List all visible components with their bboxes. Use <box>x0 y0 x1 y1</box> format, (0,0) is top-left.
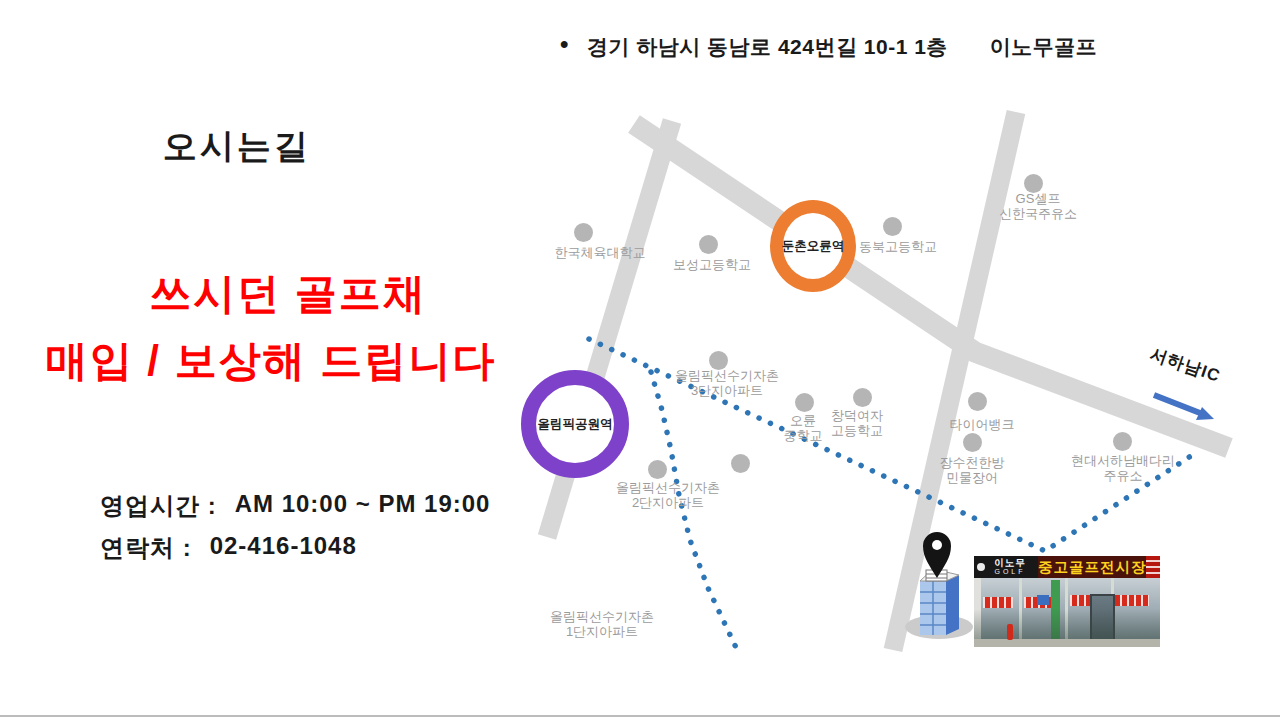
promo-line-1: 쓰시던 골프채 <box>149 266 427 322</box>
poi-label: 동북고등학교 <box>859 240 937 255</box>
slide: { "header": { "bullet": "•", "address": … <box>0 0 1280 720</box>
photo-hydrant <box>1007 624 1013 640</box>
photo-window-reflection <box>974 609 1160 639</box>
photo-sign-brand-line2: GOLF <box>994 567 1025 576</box>
photo-sign-main: 중고골프전시장 <box>1038 556 1147 578</box>
photo-storefront <box>974 578 1160 647</box>
poi-dot <box>1024 174 1043 193</box>
poi-label: 올림픽선수기자촌 2단지아파트 <box>616 481 720 510</box>
photo-window-banner <box>983 597 1013 608</box>
hours-value: AM 10:00 ~ PM 19:00 <box>235 490 491 522</box>
promo-line-2: 매입 / 보상해 드립니다 <box>46 333 497 389</box>
poi-label: 타이어뱅크 <box>950 418 1015 433</box>
contact-line: 연락처 : 02-416-1048 <box>100 532 357 564</box>
poi-label: 올림픽선수기자촌 1단지아파트 <box>550 610 654 639</box>
address-text: 경기 하남시 동남로 424번길 10-1 1층 <box>587 33 948 61</box>
poi-dot <box>853 388 872 407</box>
hours-line: 영업시간 : AM 10:00 ~ PM 19:00 <box>100 490 490 522</box>
photo-sign: 이노무 GOLF 중고골프전시장 <box>974 556 1160 578</box>
poi-label: 장수천한방 민물장어 <box>940 456 1005 485</box>
photo-sign-brand: 이노무 GOLF <box>974 556 1038 578</box>
poi-label: GS셀프 신한국주유소 <box>999 192 1077 221</box>
page-title: 오시는길 <box>163 124 311 170</box>
bullet-icon: • <box>560 30 569 58</box>
station-label: 올림픽공원역 <box>538 416 613 433</box>
photo-sign-endcap <box>1146 556 1160 578</box>
poi-dot <box>709 351 728 370</box>
photo-blue-sign <box>1037 595 1049 605</box>
overlay: • 경기 하남시 동남로 424번길 10-1 1층 이노무골프 오시는길 쓰시… <box>0 0 1280 720</box>
contact-value: 02-416-1048 <box>210 532 357 564</box>
poi-label: 한국체육대학교 <box>555 246 646 261</box>
poi-label: 현대서하남배다리 주유소 <box>1071 454 1175 483</box>
poi-dot <box>795 393 814 412</box>
poi-label: 창덕여자 고등학교 <box>831 409 883 438</box>
poi-label: 보성고등학교 <box>673 258 751 273</box>
photo-window-banner <box>1113 595 1149 606</box>
poi-dot <box>731 454 750 473</box>
hours-label: 영업시간 : <box>100 490 217 522</box>
poi-dot <box>883 217 902 236</box>
storefront-photo: 이노무 GOLF 중고골프전시장 <box>974 556 1160 647</box>
address-line: • 경기 하남시 동남로 424번길 10-1 1층 이노무골프 <box>560 32 1097 61</box>
station-ring: 둔촌오륜역 <box>770 200 856 292</box>
photo-sidewalk <box>974 639 1160 647</box>
station-ring: 올림픽공원역 <box>521 370 629 478</box>
poi-label: 올림픽선수기자촌 3단지아파트 <box>675 369 779 398</box>
photo-sign-logo-icon <box>977 563 985 571</box>
poi-label: 오륜 중학교 <box>784 414 823 443</box>
photo-sign-brand-line1: 이노무 <box>994 558 1026 567</box>
poi-dot <box>1113 432 1132 451</box>
ic-label: 서하남IC <box>1147 342 1249 396</box>
poi-dot <box>968 392 987 411</box>
slide-bottom-border <box>0 715 1280 717</box>
poi-dot <box>574 223 593 242</box>
contact-label: 연락처 : <box>100 532 192 564</box>
brand-text: 이노무골프 <box>990 33 1098 61</box>
station-label: 둔촌오륜역 <box>782 238 845 255</box>
poi-dot <box>963 433 982 452</box>
poi-dot <box>648 460 667 479</box>
poi-dot <box>699 235 718 254</box>
